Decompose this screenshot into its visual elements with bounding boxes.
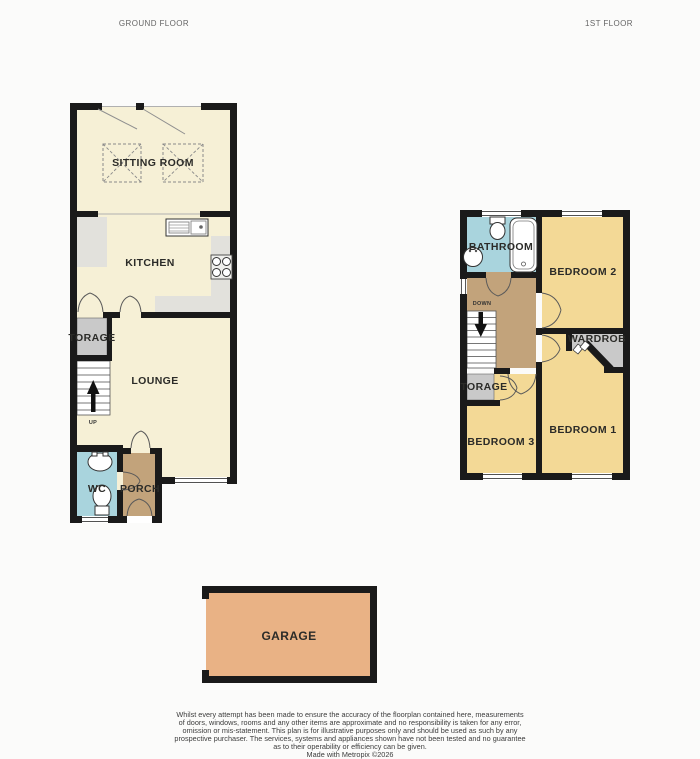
garage-plan: GARAGE [198,584,382,686]
room-kitchen-counter-bottom [155,296,230,313]
window [460,279,467,294]
label-up: UP [89,420,97,426]
disclaimer: Whilst every attempt has been made to en… [0,711,700,758]
label-bedroom1: BEDROOM 1 [549,424,616,436]
window [562,210,602,217]
first-floor-plan: BATHROOM BEDROOM 2 WARDROB TORAGE BEDROO… [456,206,634,484]
stairs-down [467,311,496,368]
label-lounge: LOUNGE [131,375,178,387]
label-sitting-room: SITTING ROOM [112,157,194,169]
window [483,473,522,480]
label-garage: GARAGE [261,629,316,643]
window [175,477,227,484]
ground-floor-title: GROUND FLOOR [89,19,219,28]
label-kitchen: KITCHEN [125,257,174,269]
label-storage-gf: TORAGE [68,332,115,344]
label-porch: PORCH [120,483,160,495]
label-down: DOWN [473,301,492,307]
label-storage-1f: TORAGE [460,381,507,393]
label-wardrobe: WARDROB [568,333,626,345]
label-bedroom3: BEDROOM 3 [467,436,534,448]
first-floor-title: 1ST FLOOR [544,19,674,28]
kitchen-sink-icon [166,219,208,236]
toilet-icon [490,217,505,240]
window [82,516,108,523]
stairs-up [77,361,110,415]
window [482,210,521,217]
front-door-opening [127,516,152,523]
window [572,473,612,480]
ground-floor-plan: SITTING ROOM KITCHEN TORAGE LOUNGE WC PO… [66,100,242,528]
label-bedroom2: BEDROOM 2 [549,266,616,278]
label-bathroom: BATHROOM [469,241,533,253]
room-kitchen-counter-left [77,217,107,267]
disclaimer-credit: Made with Metropix ©2026 [0,751,700,759]
hob-icon [211,255,232,279]
sink-icon [88,452,112,471]
label-wc: WC [88,483,106,495]
